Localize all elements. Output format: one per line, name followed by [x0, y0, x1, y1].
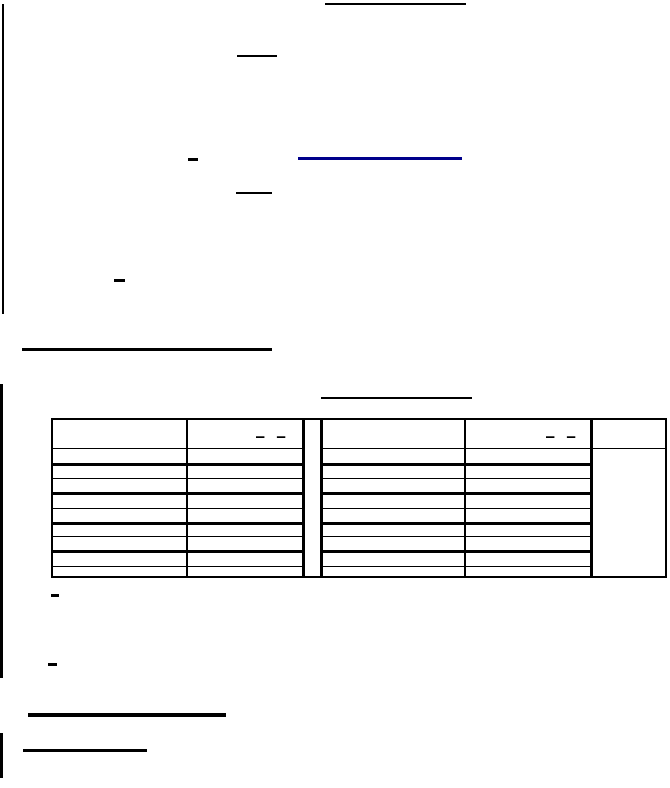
- table-row-divider: [53, 550, 302, 553]
- link-underline[interactable]: [298, 157, 462, 160]
- table-header-divider-last-column: [593, 448, 665, 449]
- table-row-divider: [53, 536, 302, 537]
- hyphen-mark-2: [114, 279, 125, 282]
- table-row-divider: [323, 522, 590, 525]
- table-row-divider: [53, 463, 302, 466]
- table-title-underline: [321, 397, 472, 399]
- left-margin-bar-bottom: [0, 733, 3, 778]
- table-row-divider: [53, 492, 302, 495]
- field-underline-1: [237, 55, 277, 57]
- table-row-divider: [323, 566, 590, 567]
- section-heading-underline: [22, 348, 272, 351]
- table-row-divider: [323, 550, 590, 553]
- table-row-divider: [323, 536, 590, 537]
- table-row-divider: [53, 566, 302, 567]
- table-row-divider: [53, 522, 302, 525]
- table-row-divider: [323, 448, 590, 449]
- left-margin-bar-top: [2, 4, 4, 314]
- table-row-divider: [53, 508, 302, 509]
- left-margin-bar-middle: [0, 384, 3, 678]
- table-gap-column-left-border: [302, 420, 305, 576]
- signature-underline-1: [28, 713, 226, 717]
- table-row-divider: [53, 448, 302, 449]
- table-row-divider: [323, 492, 590, 495]
- table-row-divider: [53, 478, 302, 479]
- table-row-divider: [323, 478, 590, 479]
- title-underline: [325, 3, 466, 5]
- field-underline-2: [236, 192, 272, 194]
- hyphen-mark-3: [51, 594, 59, 597]
- table-row-divider: [323, 463, 590, 466]
- table-row-divider: [323, 508, 590, 509]
- table-header-dashes-left: – –: [256, 430, 287, 444]
- hyphen-mark-4: [48, 663, 57, 666]
- document-page: – – – –: [0, 0, 670, 788]
- signature-underline-2: [23, 749, 147, 752]
- table-column-divider-4: [590, 420, 593, 576]
- hyphen-mark-1: [188, 158, 198, 161]
- table-header-dashes-right: – –: [546, 430, 577, 444]
- data-table: – – – –: [51, 418, 667, 578]
